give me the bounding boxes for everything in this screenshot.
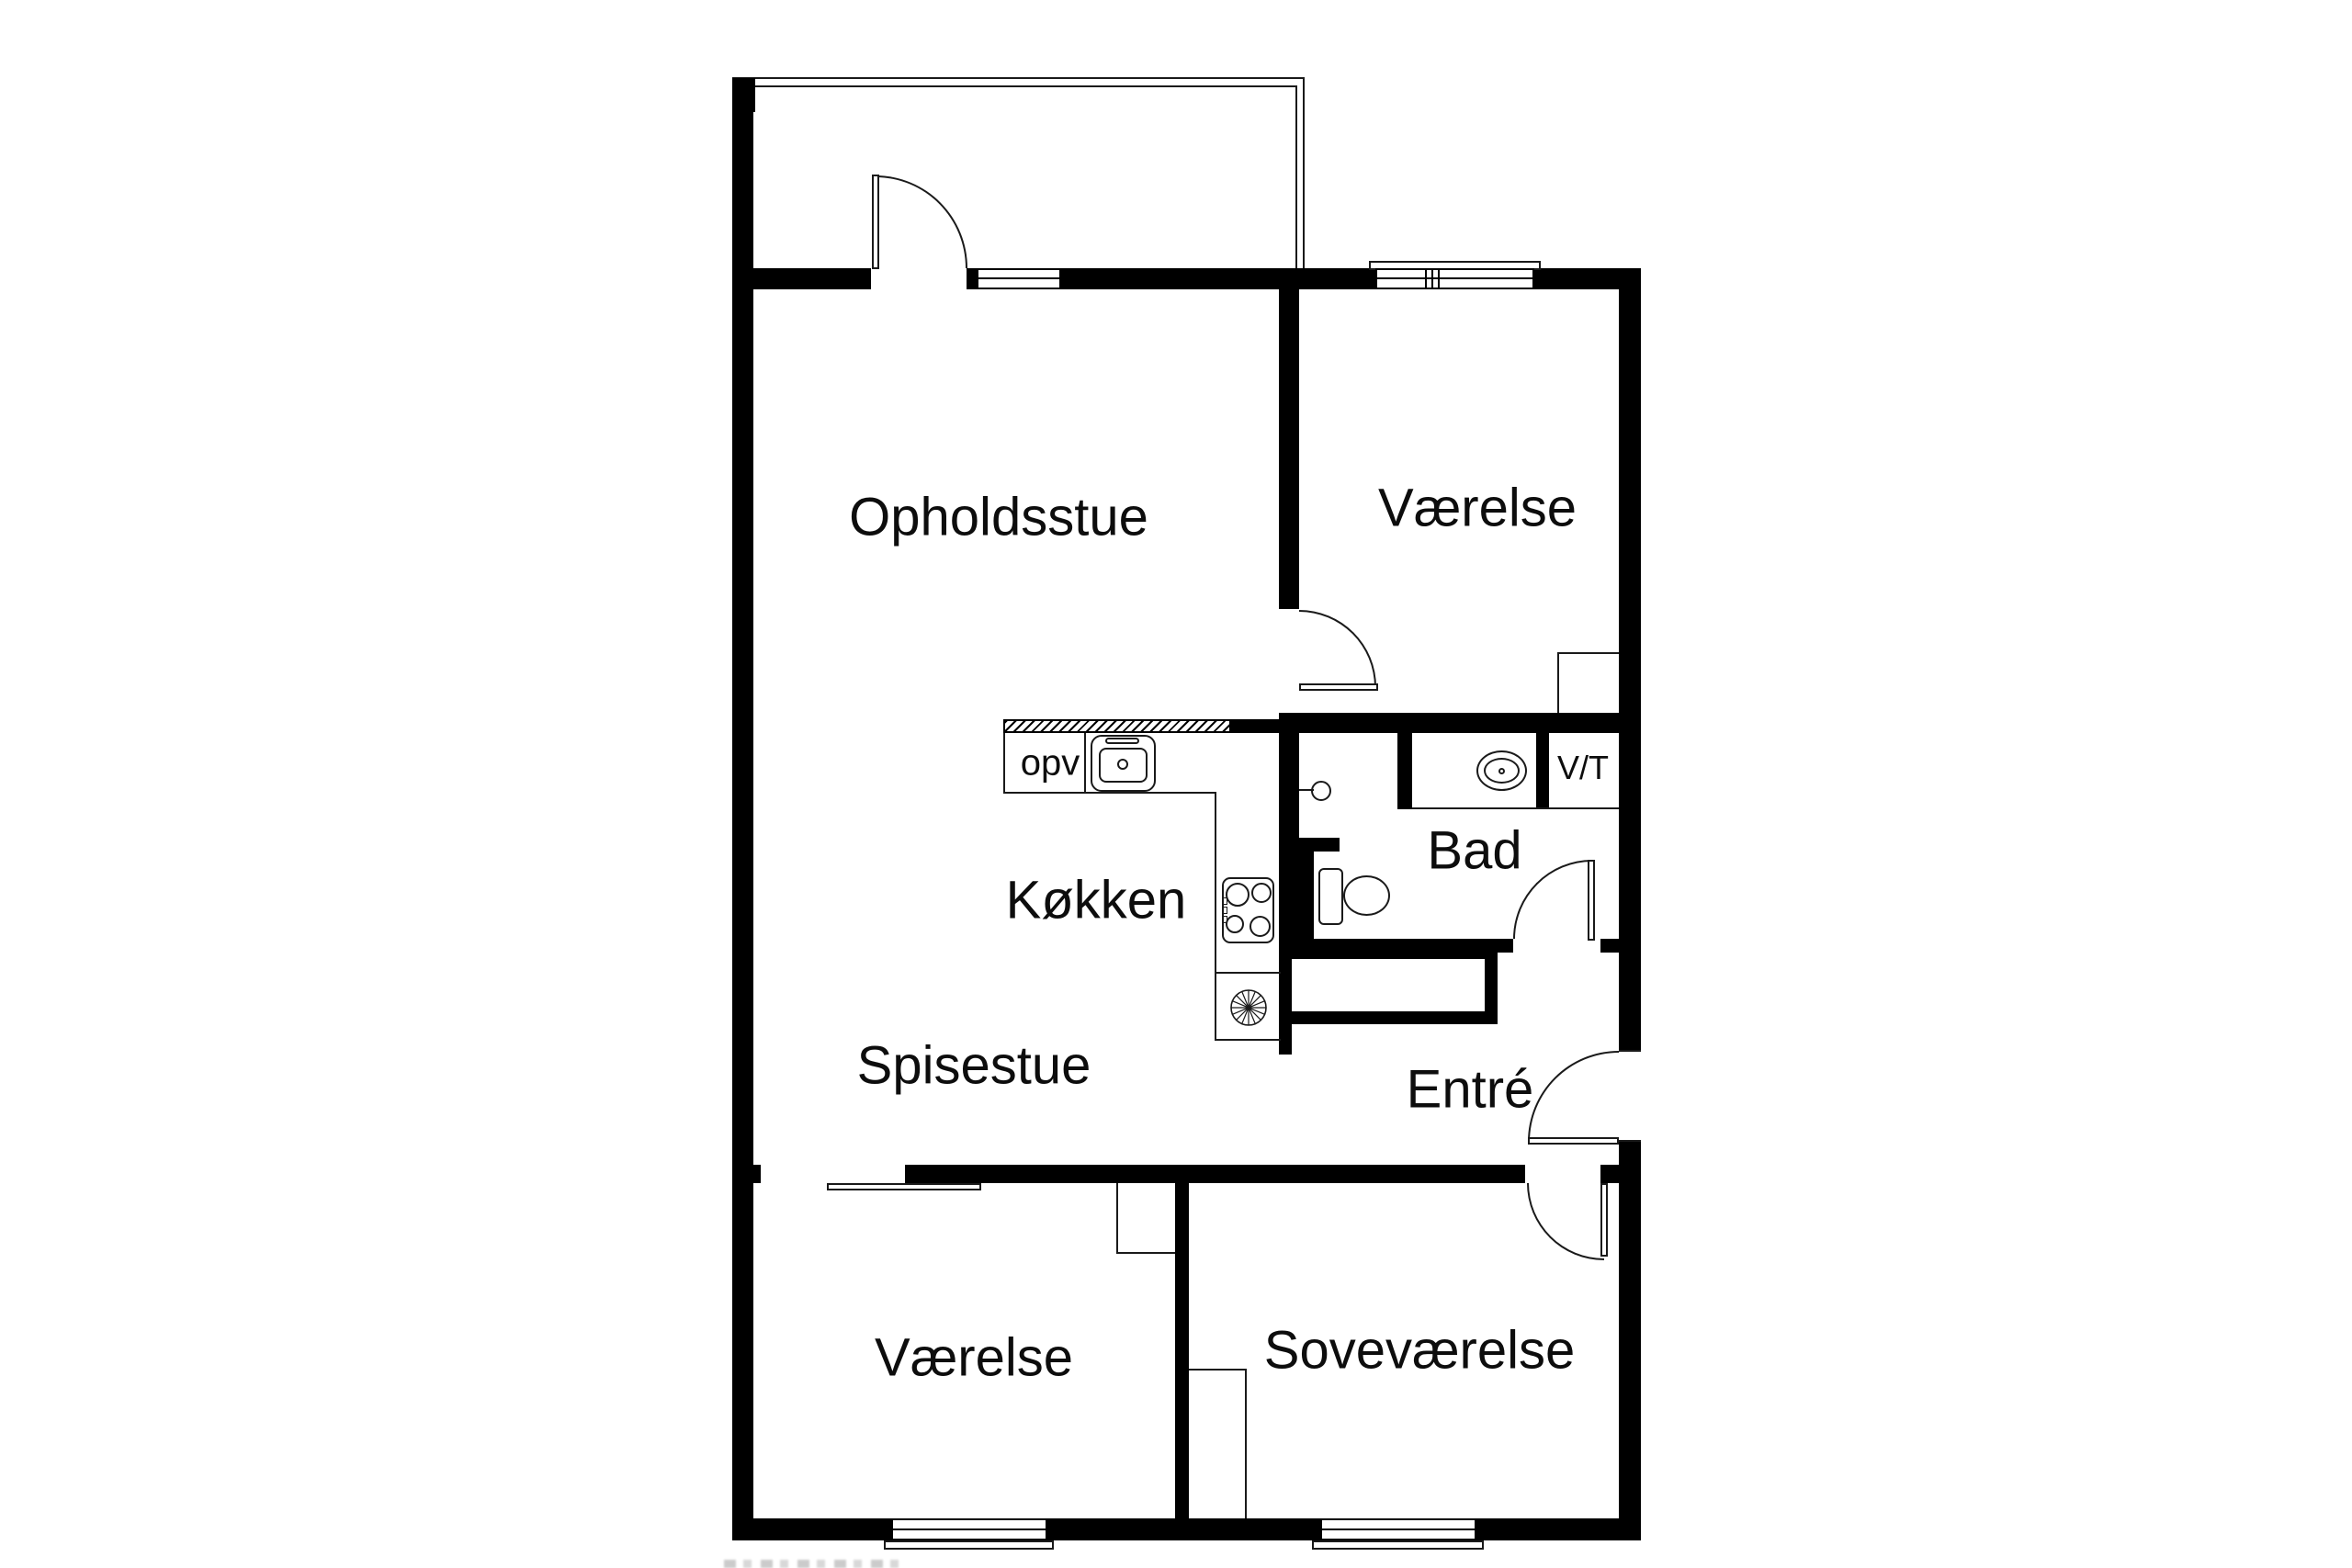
- extractor-fan-icon: [1229, 988, 1268, 1027]
- wall-top: [967, 268, 977, 289]
- wall-below-closet: [1279, 1024, 1292, 1055]
- window-mid-line: [1322, 1529, 1475, 1530]
- bathroom-door-leaf: [1588, 860, 1595, 941]
- room-door-leaf: [1299, 683, 1378, 691]
- entry-door-leaf: [1528, 1137, 1619, 1145]
- room-label-vaerelse-top: Værelse: [1378, 478, 1577, 539]
- wall-bottom: [1476, 1518, 1641, 1540]
- floor-plan: Opholdsstue Værelse Køkken Bad Spisestue…: [0, 0, 2352, 1568]
- balcony-outline-inner: [753, 85, 1297, 268]
- room-label-spisestue: Spisestue: [857, 1035, 1091, 1097]
- wall-right: [1619, 1142, 1641, 1540]
- kitchen-counter-edge: [1215, 1039, 1281, 1041]
- window-mullion: [1425, 270, 1427, 288]
- closet-line: [1116, 1252, 1175, 1254]
- toilet-bowl: [1343, 875, 1390, 916]
- wall-toilet-stub: [1299, 838, 1314, 939]
- wall-bathroom-top: [1279, 713, 1619, 733]
- bedroom-door-arc: [1527, 1183, 1604, 1260]
- window-mid-line: [978, 277, 1059, 279]
- wall-bathroom-bottom: [1600, 939, 1619, 953]
- wall-left: [732, 78, 753, 1540]
- entry-door-arc: [1528, 1051, 1619, 1142]
- wall-livingroom-room: [1279, 289, 1299, 609]
- bedroom-door-leaf: [1600, 1183, 1608, 1257]
- bathroom-counter-line: [1412, 807, 1619, 809]
- kitchen-counter-edge: [1084, 733, 1086, 794]
- room-label-bad: Bad: [1427, 820, 1521, 882]
- closet-line: [1557, 652, 1619, 654]
- room-label-opholdsstue: Opholdsstue: [849, 487, 1148, 548]
- stove-burner: [1226, 915, 1244, 933]
- sliding-door-panel: [827, 1183, 981, 1190]
- wall-top-corner: [732, 78, 755, 112]
- room-door-arc: [1299, 610, 1376, 687]
- wall-dining-bedrooms: [905, 1165, 1525, 1183]
- kitchen-counter-edge: [1215, 972, 1281, 974]
- stove-knob: [1223, 916, 1227, 923]
- room-label-vaerelse-bottom: Værelse: [875, 1327, 1073, 1389]
- balcony-door-leaf: [872, 175, 879, 269]
- window-mullion: [1438, 270, 1440, 288]
- wall-shower-stub: [1397, 733, 1412, 809]
- entry-door-niche: [1619, 1050, 1641, 1142]
- closet-hall-wall: [1279, 1011, 1498, 1024]
- wall-kitchen-bathroom: [1279, 733, 1299, 953]
- kitchen-counter-hatch: [1003, 719, 1231, 733]
- wall-vt-divider: [1536, 733, 1549, 809]
- window-mid-line: [893, 1529, 1046, 1530]
- wall-top: [1061, 268, 1375, 289]
- watermark-fragment: [724, 1560, 899, 1568]
- entry-door-niche-line: [1619, 1140, 1641, 1142]
- wall-dining-bedrooms: [753, 1165, 761, 1183]
- room-label-koekken: Køkken: [1006, 870, 1187, 931]
- window-mid-line: [1377, 277, 1532, 279]
- closet-line: [1116, 1183, 1118, 1254]
- wall-bottom: [732, 1518, 891, 1540]
- stove-burner: [1251, 883, 1272, 903]
- window-sill: [1312, 1540, 1484, 1550]
- closet-line: [1557, 652, 1559, 713]
- window-mullion: [1431, 270, 1433, 288]
- shower-icon: [1311, 781, 1331, 801]
- closet-line: [1245, 1369, 1247, 1518]
- closet-hall-wall: [1485, 946, 1498, 1024]
- kitchen-sink-faucet: [1105, 738, 1139, 744]
- window-sill: [884, 1540, 1054, 1550]
- washbasin-drain: [1498, 768, 1505, 774]
- entry-door-niche-line: [1619, 1050, 1641, 1052]
- stove-knob: [1223, 907, 1227, 914]
- wall-bottom: [1047, 1518, 1320, 1540]
- kitchen-counter-edge: [1215, 792, 1216, 1041]
- wall-kitchen-cap: [1231, 719, 1279, 733]
- room-label-entre: Entré: [1407, 1059, 1534, 1121]
- wall-toilet-stub: [1314, 838, 1340, 852]
- fixture-label-dishwasher: opv: [1021, 743, 1080, 784]
- wall-right: [1619, 268, 1641, 1050]
- bathroom-door-arc: [1513, 860, 1592, 939]
- wall-bedroom-divider: [1175, 1183, 1189, 1518]
- kitchen-sink-drain: [1117, 759, 1128, 770]
- stove-burner: [1249, 916, 1271, 937]
- closet-line: [1189, 1369, 1247, 1371]
- stove-burner: [1226, 883, 1249, 907]
- kitchen-counter-edge: [1003, 733, 1005, 794]
- wall-dining-bedrooms: [1600, 1165, 1619, 1183]
- kitchen-counter-edge: [1003, 792, 1216, 794]
- stove-knob: [1223, 897, 1227, 905]
- toilet-tank: [1318, 868, 1343, 925]
- fixture-label-washer-dryer: V/T: [1557, 749, 1609, 787]
- closet-hall-wall: [1279, 946, 1292, 1024]
- wall-top: [732, 268, 871, 289]
- room-label-sovevaerelse: Soveværelse: [1264, 1320, 1575, 1382]
- closet-hall-wall: [1279, 946, 1498, 959]
